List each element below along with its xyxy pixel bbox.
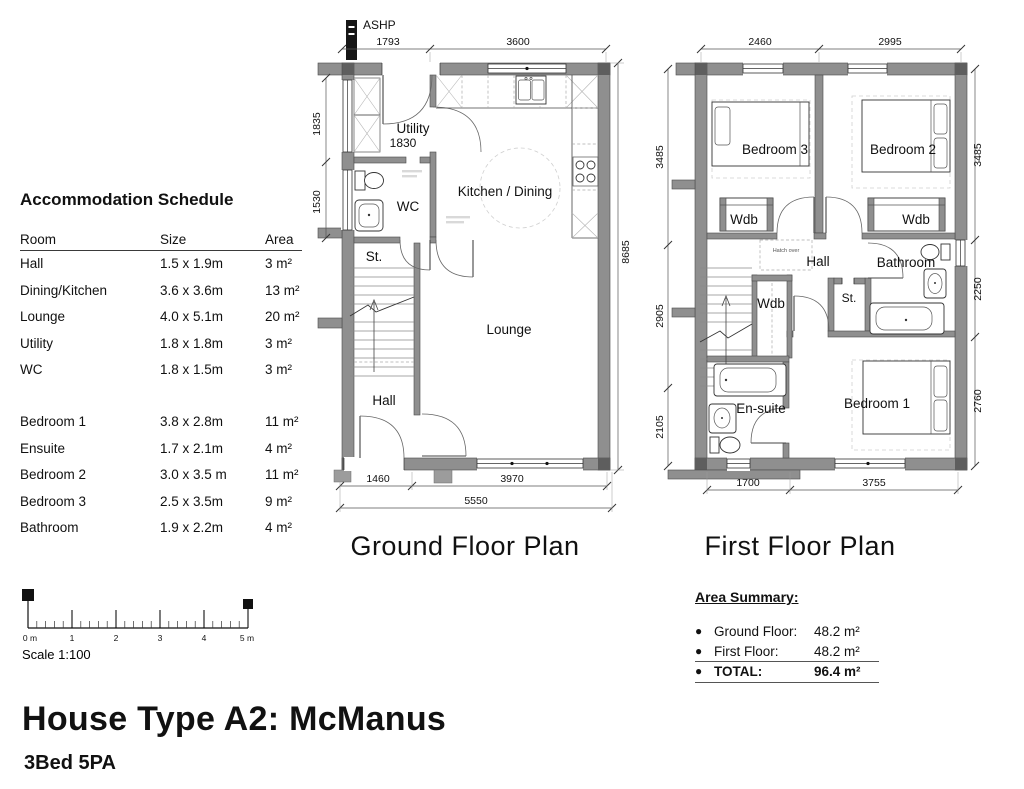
table-row: Bedroom 32.5 x 3.5m9 m²	[20, 489, 302, 516]
ff-dim-left-3485: 3485	[654, 145, 666, 169]
ff-label-wdb-landing: Wdb	[757, 296, 785, 311]
ff-label-hall: Hall	[806, 254, 829, 269]
area-value: 48.2 m²	[814, 642, 879, 662]
ff-label-bathroom: Bathroom	[877, 255, 936, 270]
row-size: 1.8 x 1.8m	[160, 331, 265, 358]
ff-dim-2105: 2105	[654, 415, 666, 439]
ff-label-bedroom1: Bedroom 1	[844, 396, 910, 411]
col-size: Size	[160, 232, 265, 247]
schedule-title: Accommodation Schedule	[20, 190, 302, 210]
area-value: 96.4 m²	[814, 662, 879, 682]
row-size: 4.0 x 5.1m	[160, 304, 265, 331]
row-room: Bedroom 2	[20, 462, 160, 489]
ff-label-bedroom3: Bedroom 3	[742, 142, 808, 157]
ff-label-st: St.	[842, 291, 857, 305]
row-room: Utility	[20, 331, 160, 358]
table-row: WC1.8 x 1.5m3 m²	[20, 357, 302, 384]
ff-label-hatch: Hatch over	[773, 248, 800, 254]
house-type-title: House Type A2: McManus	[22, 700, 446, 739]
ff-dim-3755: 3755	[862, 477, 886, 489]
gf-label-utility: Utility	[397, 121, 430, 136]
row-size: 3.6 x 3.6m	[160, 278, 265, 305]
row-size: 3.0 x 3.5 m	[160, 462, 265, 489]
gf-dim-3600: 3600	[506, 36, 530, 48]
ground-floor-plan: 1793 3600 1835 1530 8685 1460 3970	[311, 18, 632, 512]
area-summary-row: ● Ground Floor: 48.2 m²	[695, 622, 879, 642]
gf-dim-3970: 3970	[500, 473, 524, 485]
row-size: 1.9 x 2.2m	[160, 515, 265, 542]
row-area: 11 m²	[265, 409, 302, 436]
gf-label-st: St.	[366, 249, 383, 264]
table-row: Utility1.8 x 1.8m3 m²	[20, 331, 302, 358]
area-label: Ground Floor:	[714, 622, 814, 642]
drawing-sheet: 1793 3600 1835 1530 8685 1460 3970	[0, 0, 1024, 789]
bullet-icon: ●	[695, 662, 714, 682]
row-area: 3 m²	[265, 251, 302, 278]
gf-wc-fixtures	[355, 171, 384, 231]
gf-stairs	[350, 268, 414, 376]
row-size: 3.8 x 2.8m	[160, 409, 265, 436]
area-summary-title: Area Summary:	[695, 589, 879, 605]
area-summary-total-row: ● TOTAL: 96.4 m²	[695, 662, 879, 683]
row-room: Ensuite	[20, 436, 160, 463]
row-area: 11 m²	[265, 462, 302, 489]
area-summary: Area Summary: ● Ground Floor: 48.2 m² ● …	[695, 589, 879, 683]
gf-utility-appliances	[354, 78, 380, 152]
ff-dim-2905: 2905	[654, 304, 666, 328]
row-size: 1.8 x 1.5m	[160, 357, 265, 384]
table-row: Bathroom1.9 x 2.2m4 m²	[20, 515, 302, 542]
bullet-icon: ●	[695, 622, 714, 642]
ff-dim-right-3485: 3485	[972, 143, 984, 167]
table-row: Bedroom 23.0 x 3.5 m11 m²	[20, 462, 302, 489]
gf-windows	[341, 62, 583, 471]
row-room: Bathroom	[20, 515, 160, 542]
scale-tick-1: 1	[70, 633, 75, 643]
ff-hatch: Hatch over	[760, 240, 812, 270]
scale-tick-3: 3	[158, 633, 163, 643]
ff-dim-1700: 1700	[736, 477, 760, 489]
scale-caption: Scale 1:100	[22, 647, 91, 662]
ff-label-wdb-bed2: Wdb	[902, 212, 930, 227]
scale-tick-4: 4	[202, 633, 207, 643]
gf-dim-1530: 1530	[311, 190, 323, 214]
scale-tick-5: 5 m	[240, 633, 254, 643]
row-size: 1.7 x 2.1m	[160, 436, 265, 463]
area-value: 48.2 m²	[814, 622, 879, 642]
row-area: 4 m²	[265, 515, 302, 542]
row-size: 1.5 x 1.9m	[160, 251, 265, 278]
gf-label-hall: Hall	[372, 393, 395, 408]
row-area: 4 m²	[265, 436, 302, 463]
schedule-header: Room Size Area	[20, 232, 302, 251]
gf-dim-1793: 1793	[376, 36, 400, 48]
ff-dim-2460: 2460	[748, 36, 772, 48]
gf-label-wc: WC	[397, 199, 420, 214]
row-room: Dining/Kitchen	[20, 278, 160, 305]
scale-bar-left-marker	[22, 589, 34, 601]
row-room: Bedroom 3	[20, 489, 160, 516]
gf-label-ashp: ASHP	[363, 18, 396, 32]
gf-dim-5550: 5550	[464, 495, 488, 507]
house-type-subtitle: 3Bed 5PA	[24, 752, 446, 775]
scale-tick-0: 0 m	[23, 633, 37, 643]
ground-floor-title: Ground Floor Plan	[338, 531, 592, 562]
scale-tick-2: 2	[114, 633, 119, 643]
gf-dim-8685: 8685	[620, 240, 632, 264]
row-room: Bedroom 1	[20, 409, 160, 436]
row-room: Hall	[20, 251, 160, 278]
scale-bar-right-marker	[243, 599, 253, 609]
ff-label-ensuite: En-suite	[736, 401, 786, 416]
ff-dim-2760: 2760	[972, 389, 984, 413]
row-area: 9 m²	[265, 489, 302, 516]
row-area: 13 m²	[265, 278, 302, 305]
accommodation-schedule: Accommodation Schedule Room Size Area Ha…	[20, 190, 302, 542]
sheet-footer: House Type A2: McManus 3Bed 5PA	[22, 700, 446, 775]
row-room: Lounge	[20, 304, 160, 331]
row-area: 3 m²	[265, 331, 302, 358]
area-summary-row: ● First Floor: 48.2 m²	[695, 642, 879, 663]
ff-label-bedroom2: Bedroom 2	[870, 142, 936, 157]
ff-dim-2250: 2250	[972, 277, 984, 301]
table-row: Ensuite1.7 x 2.1m4 m²	[20, 436, 302, 463]
row-area: 20 m²	[265, 304, 302, 331]
first-floor-plan: Hatch over	[654, 36, 984, 494]
scale-bar: 0 m 1 2 3 4 5 m Scale 1:100	[22, 589, 254, 662]
bullet-icon: ●	[695, 642, 714, 662]
gf-dim-1835: 1835	[311, 112, 323, 136]
table-row: Dining/Kitchen3.6 x 3.6m13 m²	[20, 278, 302, 305]
gf-label-kitchen: Kitchen / Dining	[458, 184, 553, 199]
ff-dim-2995: 2995	[878, 36, 902, 48]
ff-label-wdb-bed3: Wdb	[730, 212, 758, 227]
table-row: Bedroom 13.8 x 2.8m11 m²	[20, 409, 302, 436]
table-row: Lounge4.0 x 5.1m20 m²	[20, 304, 302, 331]
gf-ashp-unit	[346, 20, 357, 60]
row-size: 2.5 x 3.5m	[160, 489, 265, 516]
row-room: WC	[20, 357, 160, 384]
gf-dim-1460: 1460	[366, 473, 390, 485]
col-room: Room	[20, 232, 160, 247]
area-label: TOTAL:	[714, 662, 814, 682]
row-area: 3 m²	[265, 357, 302, 384]
gf-label-lounge: Lounge	[486, 322, 531, 337]
gf-label-1830: 1830	[390, 136, 417, 150]
first-floor-title: First Floor Plan	[682, 531, 918, 562]
col-area: Area	[265, 232, 302, 247]
table-row: Hall1.5 x 1.9m3 m²	[20, 251, 302, 278]
area-label: First Floor:	[714, 642, 814, 662]
